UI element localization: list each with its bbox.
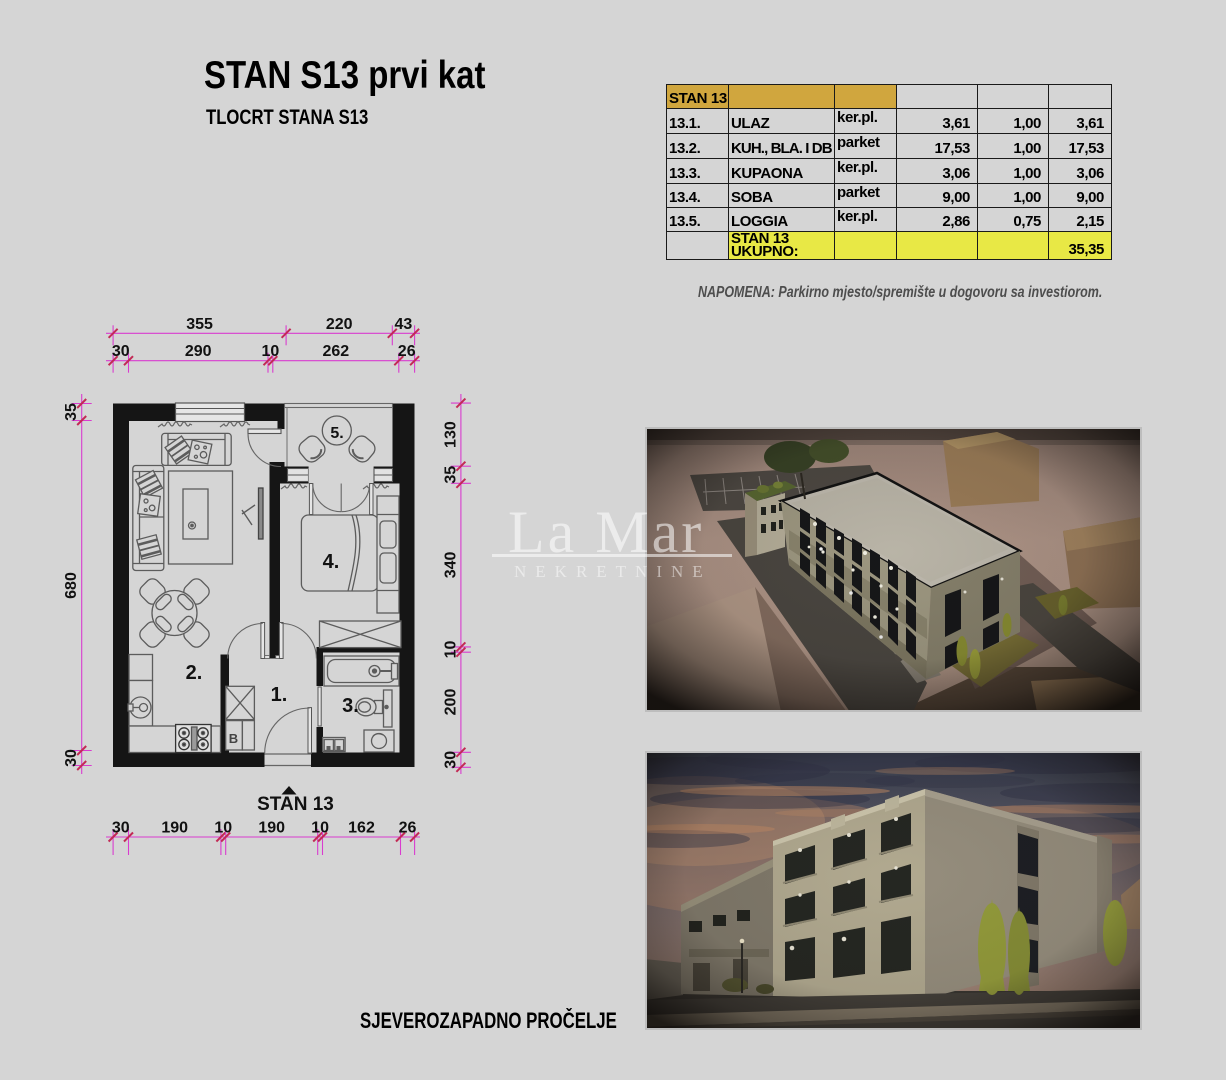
svg-text:10: 10 — [442, 641, 459, 659]
svg-text:4.: 4. — [323, 551, 340, 573]
svg-text:200: 200 — [442, 689, 459, 716]
svg-text:35: 35 — [63, 403, 80, 421]
svg-text:10: 10 — [262, 343, 280, 360]
svg-text:30: 30 — [112, 820, 130, 837]
svg-text:130: 130 — [442, 421, 459, 448]
svg-text:190: 190 — [258, 820, 285, 837]
svg-text:1.: 1. — [271, 684, 288, 706]
svg-text:162: 162 — [348, 820, 375, 837]
svg-text:5.: 5. — [330, 425, 343, 442]
svg-text:30: 30 — [112, 343, 130, 360]
svg-text:26: 26 — [399, 820, 417, 837]
svg-text:290: 290 — [185, 343, 212, 360]
svg-text:43: 43 — [395, 316, 413, 333]
svg-text:10: 10 — [311, 820, 329, 837]
svg-text:3.: 3. — [342, 695, 359, 717]
svg-text:35: 35 — [442, 466, 459, 484]
svg-text:STAN 13: STAN 13 — [257, 794, 334, 815]
svg-text:2.: 2. — [186, 662, 203, 684]
svg-text:30: 30 — [63, 749, 80, 767]
svg-text:26: 26 — [398, 343, 416, 360]
svg-text:220: 220 — [326, 316, 353, 333]
svg-text:340: 340 — [442, 551, 459, 578]
svg-text:680: 680 — [63, 572, 80, 599]
svg-text:262: 262 — [322, 343, 349, 360]
svg-text:190: 190 — [161, 820, 188, 837]
svg-text:10: 10 — [214, 820, 232, 837]
svg-text:355: 355 — [186, 316, 213, 333]
svg-text:B: B — [229, 731, 238, 746]
svg-text:30: 30 — [442, 751, 459, 769]
